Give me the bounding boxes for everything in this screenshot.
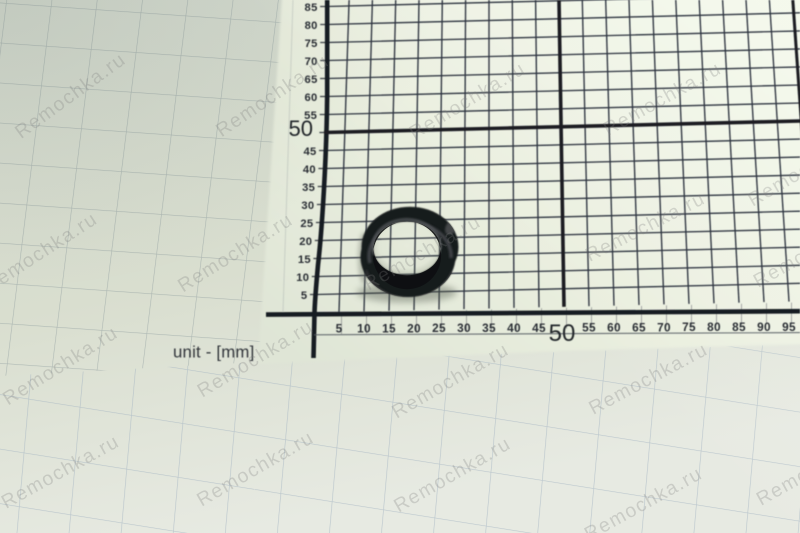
svg-text:35: 35 [302,182,315,194]
svg-text:15: 15 [298,254,311,266]
svg-text:20: 20 [299,236,312,248]
svg-text:95: 95 [782,320,796,334]
svg-text:15: 15 [382,321,396,335]
svg-text:45: 45 [532,321,546,335]
svg-text:25: 25 [300,218,313,230]
svg-text:85: 85 [305,2,318,14]
svg-text:60: 60 [607,321,621,335]
svg-text:20: 20 [407,321,421,335]
svg-text:55: 55 [582,321,596,335]
svg-text:40: 40 [303,164,316,176]
svg-text:40: 40 [507,321,521,335]
svg-text:75: 75 [305,38,318,50]
svg-text:85: 85 [732,320,746,334]
svg-text:60: 60 [304,92,317,104]
svg-text:30: 30 [301,200,314,212]
svg-text:10: 10 [296,272,309,284]
svg-text:30: 30 [457,321,471,335]
svg-text:5: 5 [301,290,308,302]
svg-text:75: 75 [682,320,696,334]
svg-text:65: 65 [632,320,646,334]
svg-text:10: 10 [357,322,371,336]
svg-text:25: 25 [432,321,446,335]
svg-text:50: 50 [289,116,313,141]
svg-text:5: 5 [336,322,343,336]
svg-text:80: 80 [305,20,318,32]
svg-text:35: 35 [482,321,496,335]
svg-text:70: 70 [657,320,671,334]
svg-text:45: 45 [303,146,316,158]
svg-text:80: 80 [707,320,721,334]
svg-text:90: 90 [757,320,771,334]
svg-text:50: 50 [549,320,576,347]
